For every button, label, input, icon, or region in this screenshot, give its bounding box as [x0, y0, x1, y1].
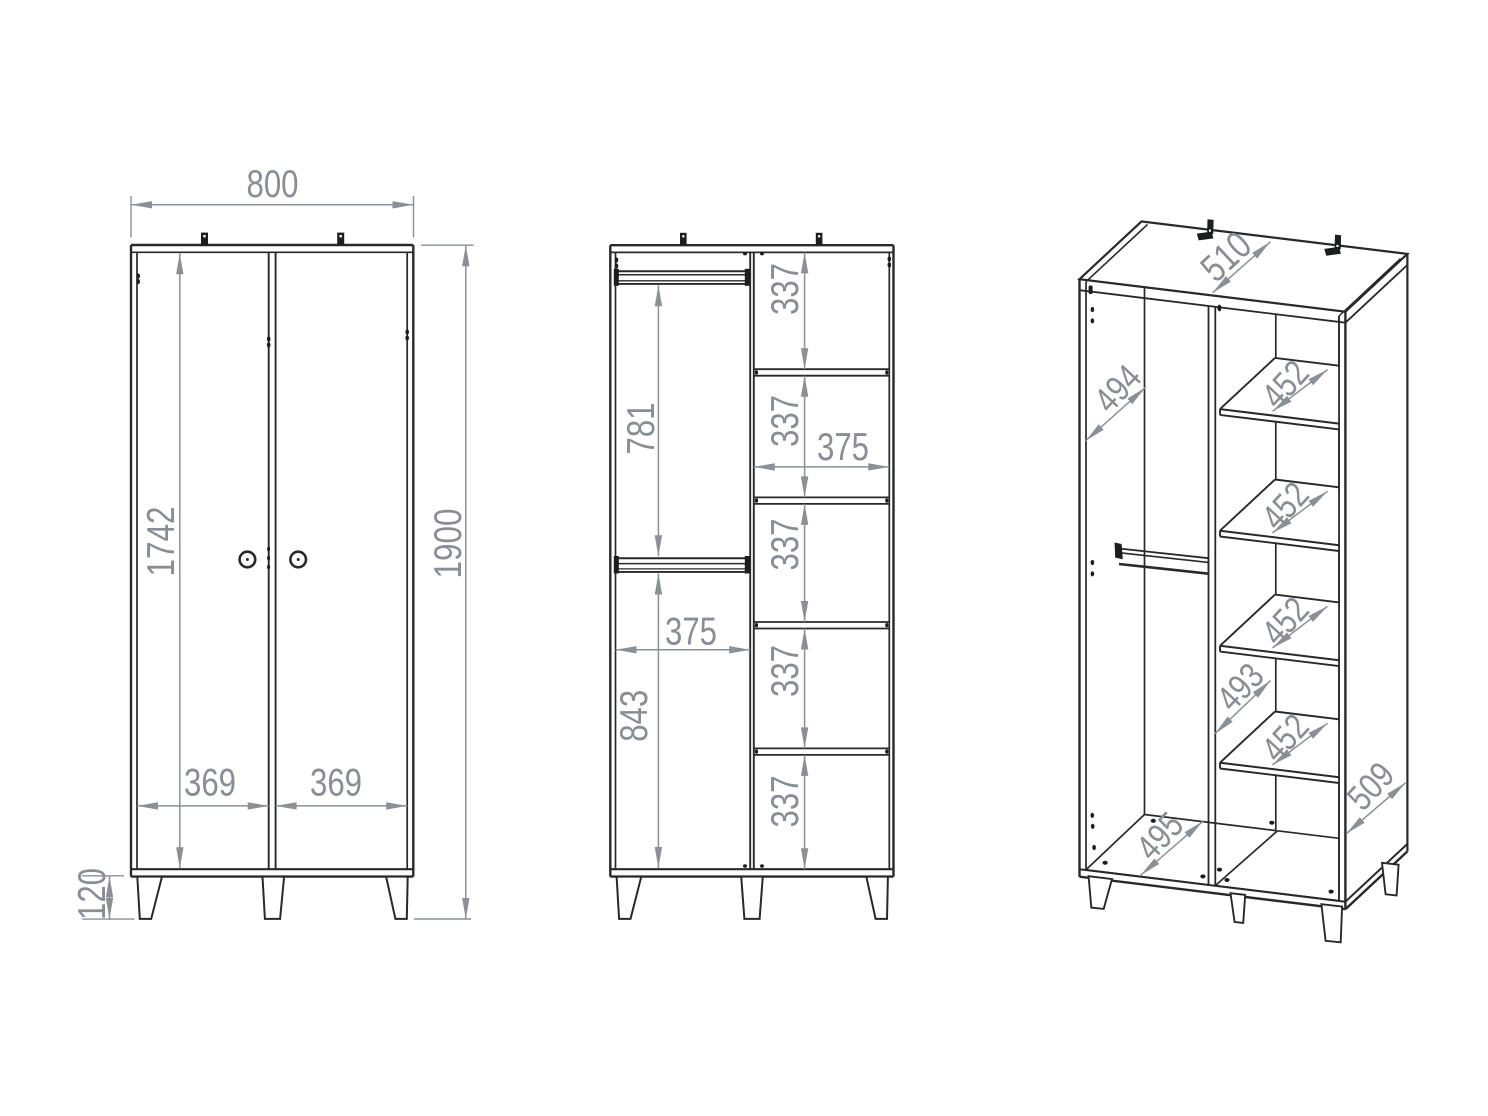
svg-text:337: 337: [764, 263, 807, 315]
svg-text:375: 375: [665, 611, 717, 654]
svg-text:369: 369: [184, 762, 236, 805]
svg-text:800: 800: [247, 163, 299, 206]
svg-text:337: 337: [764, 645, 807, 697]
svg-text:120: 120: [71, 868, 114, 920]
svg-text:781: 781: [620, 403, 663, 455]
svg-text:337: 337: [764, 776, 807, 828]
svg-text:337: 337: [764, 519, 807, 571]
svg-text:337: 337: [764, 395, 807, 447]
svg-text:375: 375: [817, 426, 869, 469]
svg-text:369: 369: [310, 762, 362, 805]
svg-text:1900: 1900: [427, 509, 470, 579]
svg-text:1742: 1742: [140, 507, 183, 577]
svg-text:843: 843: [613, 690, 656, 742]
